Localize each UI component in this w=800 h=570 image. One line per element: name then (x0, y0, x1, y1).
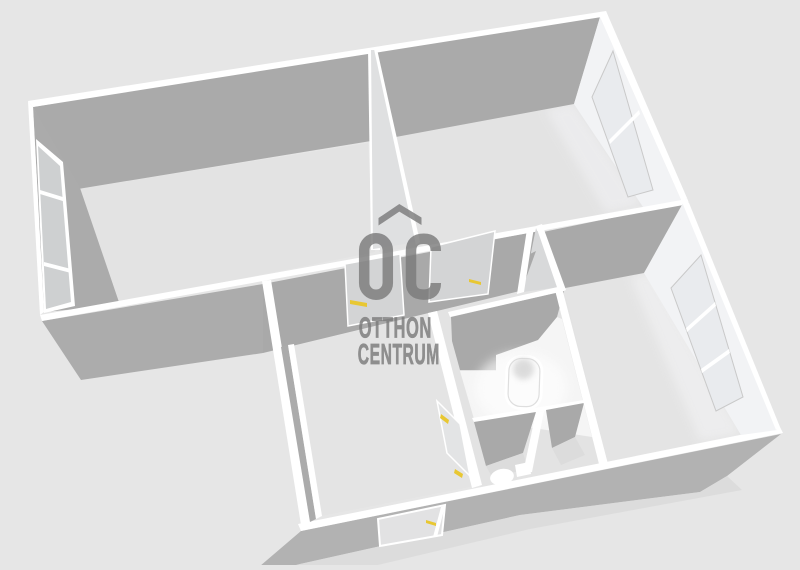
svg-text:CENTRUM: CENTRUM (358, 338, 440, 370)
